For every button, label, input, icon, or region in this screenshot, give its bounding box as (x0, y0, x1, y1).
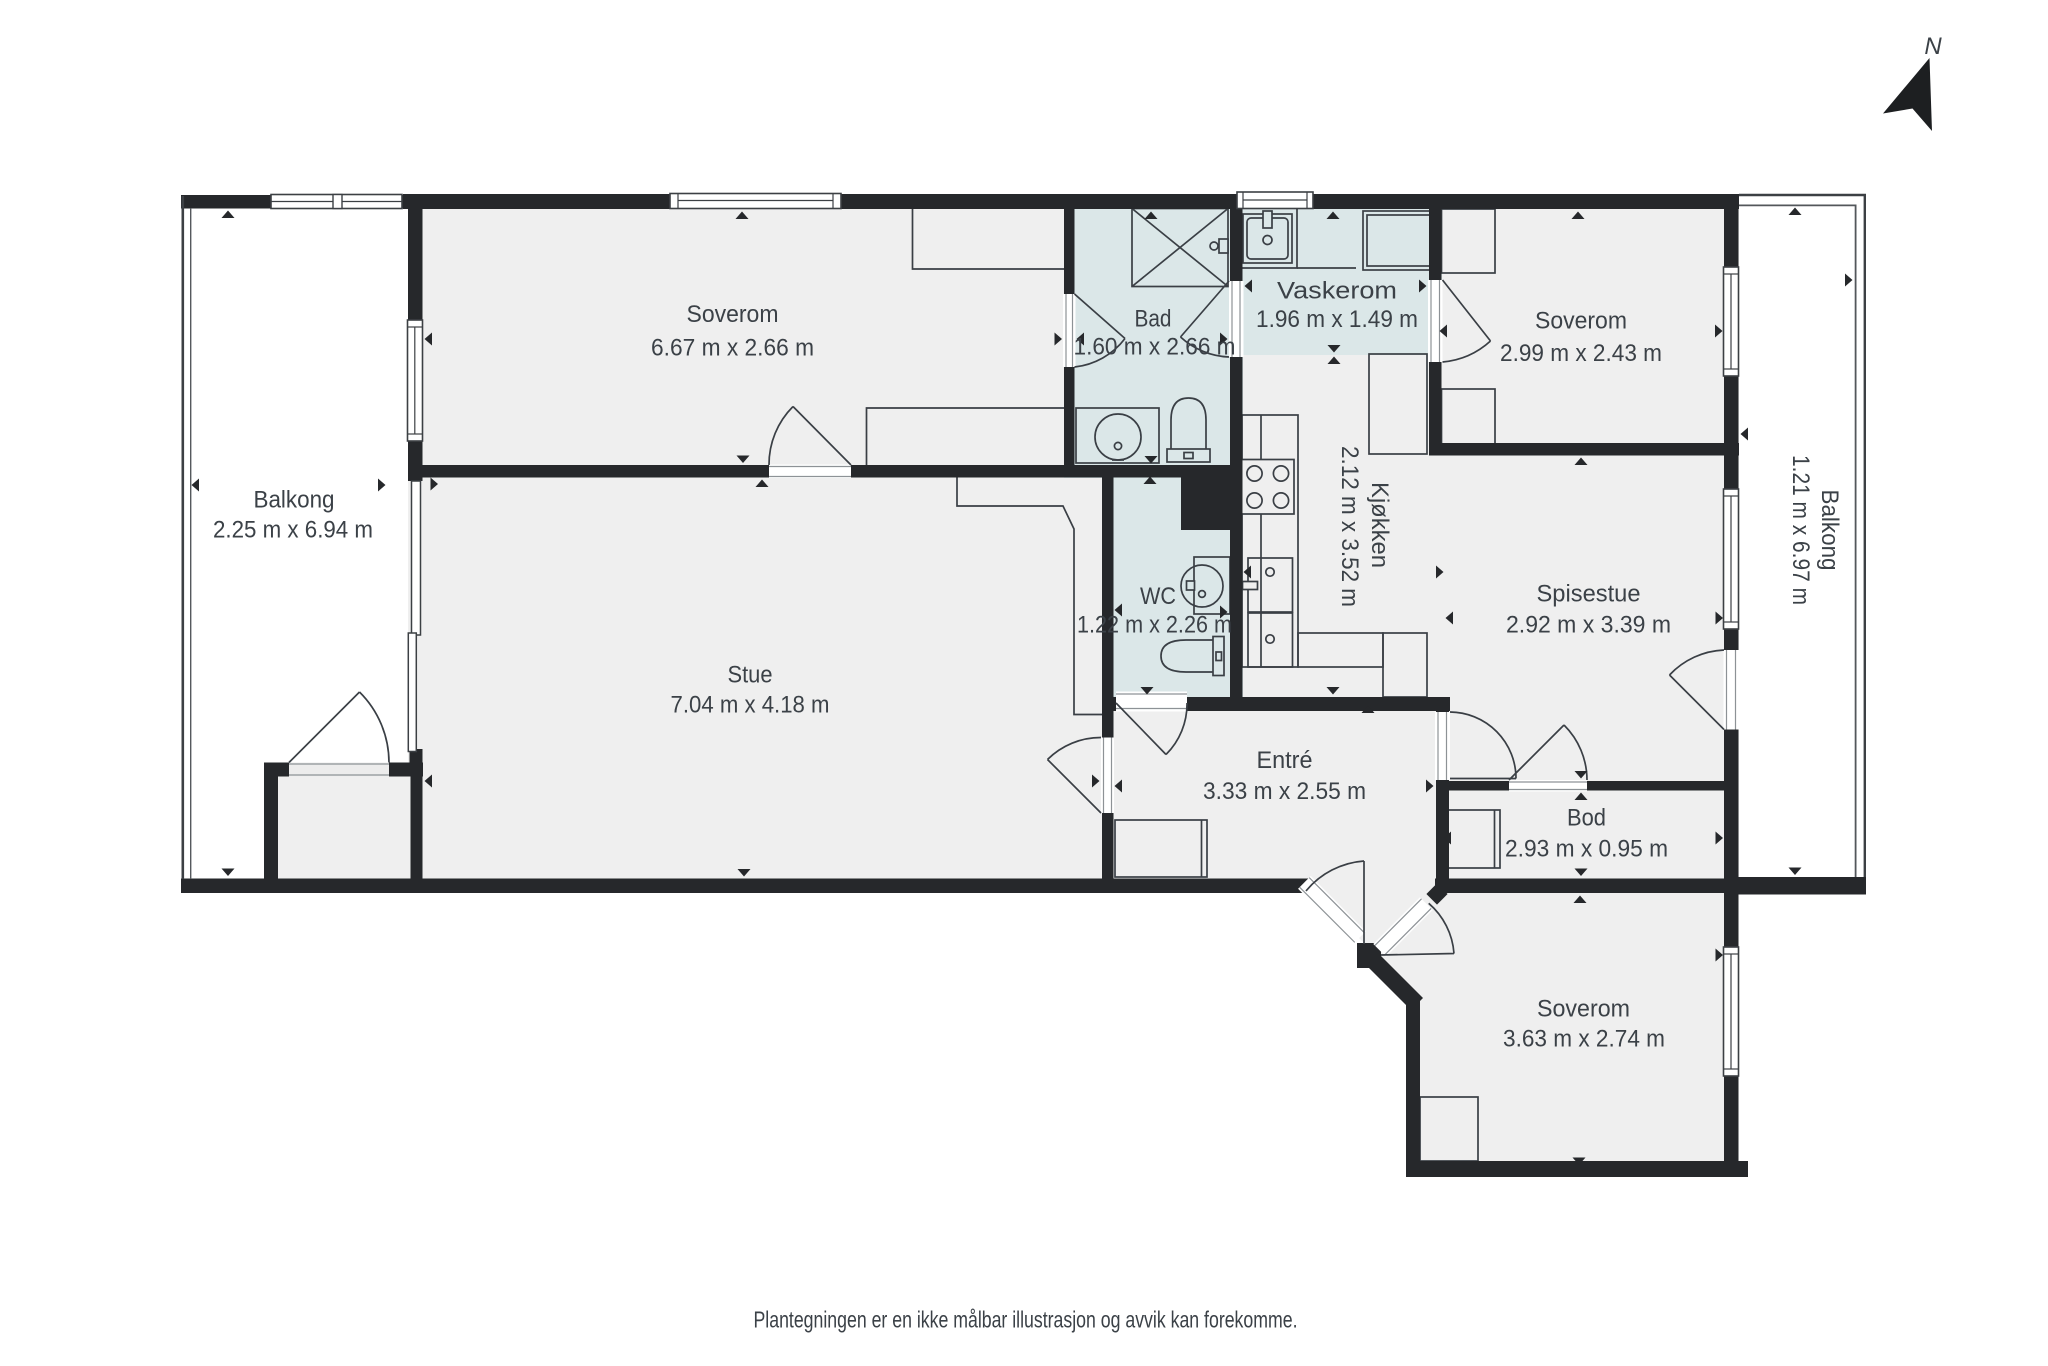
svg-text:Balkong: Balkong (254, 487, 335, 514)
svg-text:1.96 m x 1.49 m: 1.96 m x 1.49 m (1256, 306, 1418, 333)
svg-text:WC: WC (1140, 583, 1176, 610)
svg-text:2.93 m x 0.95 m: 2.93 m x 0.95 m (1505, 836, 1668, 863)
svg-text:2.99 m x 2.43 m: 2.99 m x 2.43 m (1500, 340, 1662, 367)
svg-text:Soverom: Soverom (1537, 996, 1630, 1023)
svg-text:2.92 m x 3.39 m: 2.92 m x 3.39 m (1506, 612, 1671, 639)
svg-text:N: N (1924, 33, 1942, 60)
svg-text:Plantegningen er en ikke målba: Plantegningen er en ikke målbar illustra… (754, 1307, 1298, 1333)
svg-text:Soverom: Soverom (1535, 308, 1627, 335)
svg-text:1.22 m x 2.26 m: 1.22 m x 2.26 m (1077, 612, 1232, 639)
svg-text:7.04 m x 4.18 m: 7.04 m x 4.18 m (671, 692, 830, 719)
svg-text:Soverom: Soverom (687, 301, 779, 328)
svg-text:1.60 m x 2.66 m: 1.60 m x 2.66 m (1074, 334, 1236, 361)
svg-text:Entré: Entré (1257, 747, 1313, 774)
svg-text:Bod: Bod (1567, 805, 1606, 832)
svg-text:2.25 m x 6.94 m: 2.25 m x 6.94 m (213, 517, 373, 544)
svg-text:3.33 m x 2.55 m: 3.33 m x 2.55 m (1203, 778, 1366, 805)
svg-text:1.21 m x 6.97 m: 1.21 m x 6.97 m (1787, 455, 1814, 605)
svg-text:2.12 m x 3.52 m: 2.12 m x 3.52 m (1336, 446, 1363, 607)
svg-text:6.67 m x 2.66 m: 6.67 m x 2.66 m (651, 335, 814, 362)
svg-text:Spisestue: Spisestue (1537, 581, 1641, 608)
svg-text:3.63 m x 2.74 m: 3.63 m x 2.74 m (1503, 1026, 1665, 1053)
svg-text:Stue: Stue (728, 662, 773, 689)
svg-text:Vaskerom: Vaskerom (1277, 278, 1397, 305)
svg-text:Kjøkken: Kjøkken (1366, 482, 1393, 568)
svg-text:Bad: Bad (1135, 306, 1172, 333)
svg-text:Balkong: Balkong (1816, 490, 1843, 571)
